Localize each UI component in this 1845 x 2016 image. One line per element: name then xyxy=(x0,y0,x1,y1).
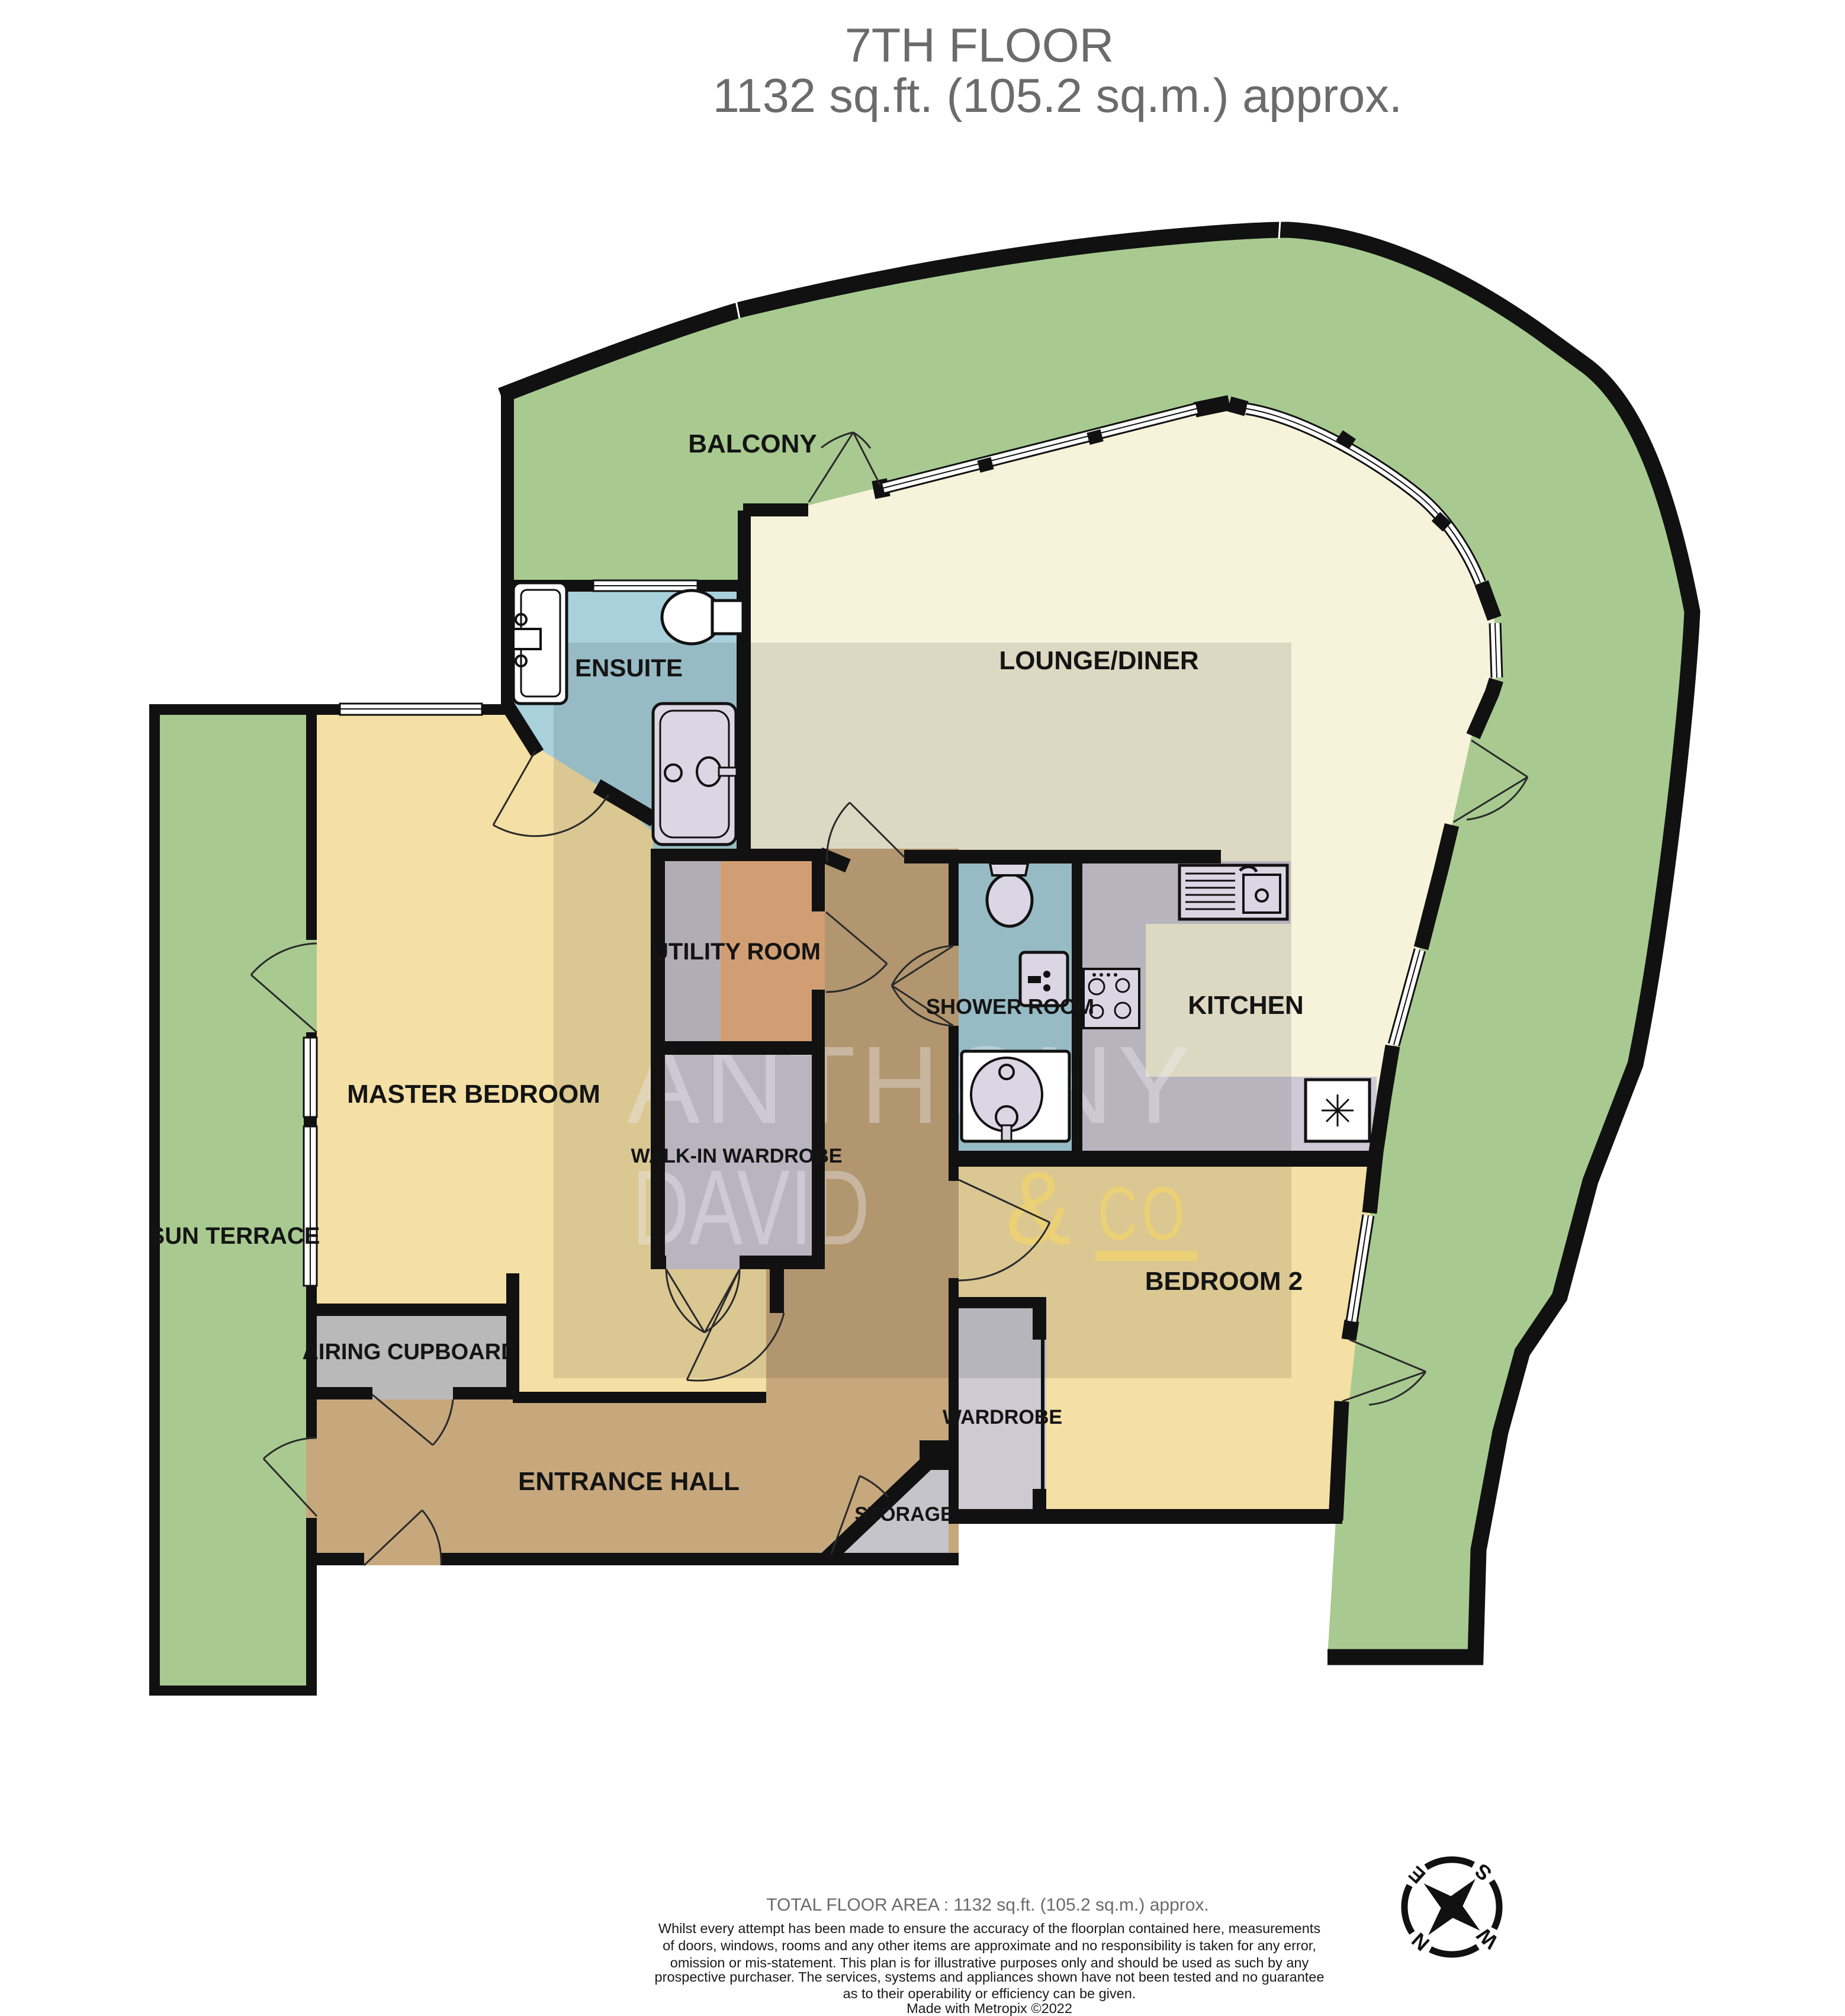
svg-text:ENSUITE: ENSUITE xyxy=(575,654,683,682)
svg-text:CO: CO xyxy=(1098,1171,1189,1256)
svg-text:prospective purchaser. The ser: prospective purchaser. The services, sys… xyxy=(655,1969,1325,1985)
svg-text:SUN TERRACE: SUN TERRACE xyxy=(149,1223,320,1249)
svg-text:STORAGE: STORAGE xyxy=(854,1503,954,1526)
svg-text:ENTRANCE HALL: ENTRANCE HALL xyxy=(518,1467,740,1496)
svg-text:Whilst every attempt has been: Whilst every attempt has been made to en… xyxy=(658,1921,1320,1936)
svg-text:of doors, windows, rooms and a: of doors, windows, rooms and any other i… xyxy=(663,1938,1316,1953)
svg-text:as to their operability or eff: as to their operability or efficiency ca… xyxy=(843,1986,1136,2001)
svg-text:WALK-IN WARDROBE: WALK-IN WARDROBE xyxy=(631,1145,843,1167)
svg-text:Made with Metropix ©2022: Made with Metropix ©2022 xyxy=(907,2001,1072,2016)
svg-text:SHOWER ROOM: SHOWER ROOM xyxy=(926,994,1094,1019)
svg-text:1132 sq.ft. (105.2 sq.m.) appr: 1132 sq.ft. (105.2 sq.m.) approx. xyxy=(713,69,1403,123)
svg-text:WARDROBE: WARDROBE xyxy=(943,1406,1062,1428)
svg-text:7TH FLOOR: 7TH FLOOR xyxy=(845,19,1114,72)
svg-text:MASTER BEDROOM: MASTER BEDROOM xyxy=(347,1080,600,1109)
svg-text:&: & xyxy=(1005,1151,1072,1266)
svg-text:AIRING CUPBOARD: AIRING CUPBOARD xyxy=(302,1340,517,1365)
svg-text:BEDROOM 2: BEDROOM 2 xyxy=(1145,1267,1303,1296)
svg-text:TOTAL FLOOR AREA : 1132 sq.ft.: TOTAL FLOOR AREA : 1132 sq.ft. (105.2 sq… xyxy=(766,1895,1209,1915)
svg-text:omission or mis-statement. Thi: omission or mis-statement. This plan is … xyxy=(670,1955,1309,1970)
svg-text:LOUNGE/DINER: LOUNGE/DINER xyxy=(999,646,1198,675)
svg-text:KITCHEN: KITCHEN xyxy=(1188,991,1304,1020)
svg-text:UTILITY ROOM: UTILITY ROOM xyxy=(651,939,821,965)
svg-text:BALCONY: BALCONY xyxy=(688,429,817,458)
